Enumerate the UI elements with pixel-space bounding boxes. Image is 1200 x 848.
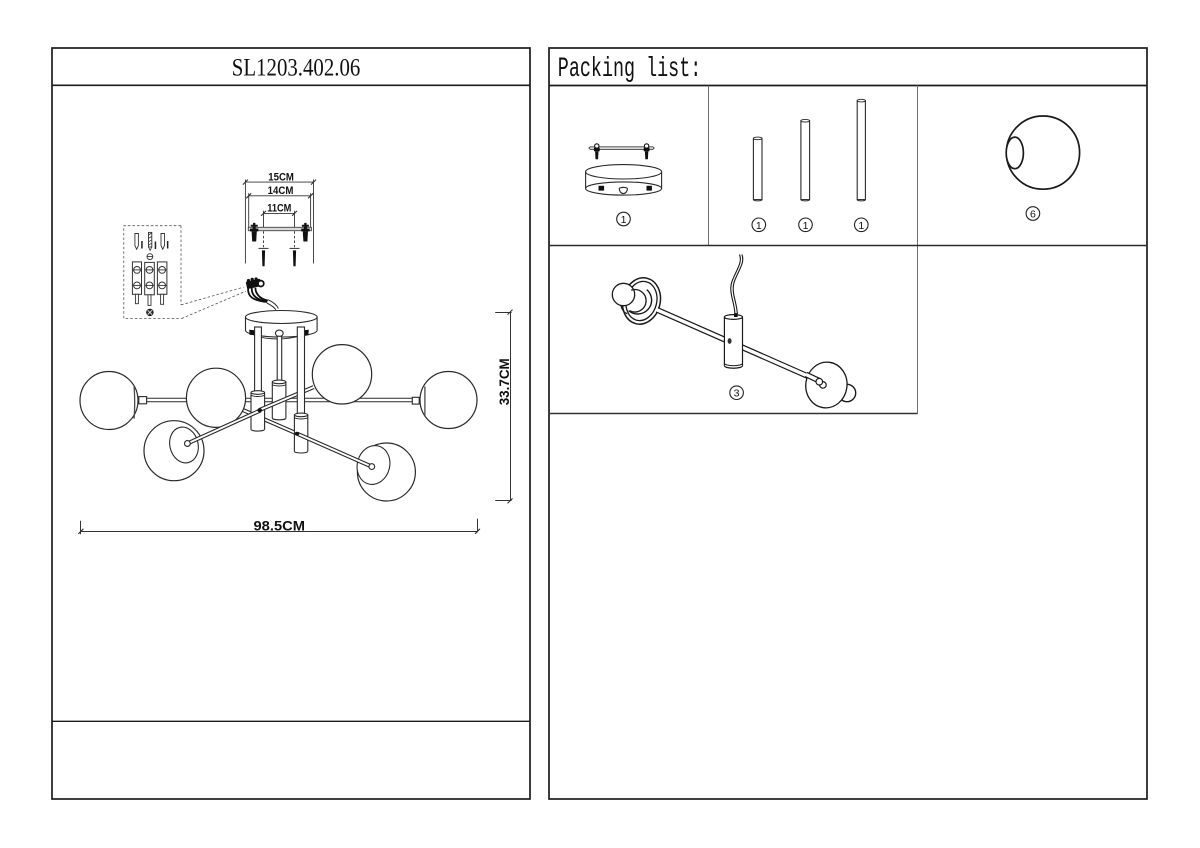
svg-text:1: 1 <box>858 220 864 232</box>
svg-text:14CM: 14CM <box>268 185 294 197</box>
svg-text:98.5CM: 98.5CM <box>254 518 306 533</box>
svg-text:3: 3 <box>734 388 740 400</box>
svg-text:11CM: 11CM <box>267 203 291 215</box>
svg-text:1: 1 <box>756 220 762 232</box>
svg-text:1: 1 <box>621 214 627 226</box>
svg-text:15CM: 15CM <box>268 171 294 183</box>
svg-text:Packing list:: Packing list: <box>558 54 702 85</box>
svg-text:1: 1 <box>803 220 809 232</box>
svg-text:6: 6 <box>1030 209 1036 221</box>
svg-text:33.7CM: 33.7CM <box>497 358 512 405</box>
svg-text:SL1203.402.06: SL1203.402.06 <box>232 54 360 81</box>
